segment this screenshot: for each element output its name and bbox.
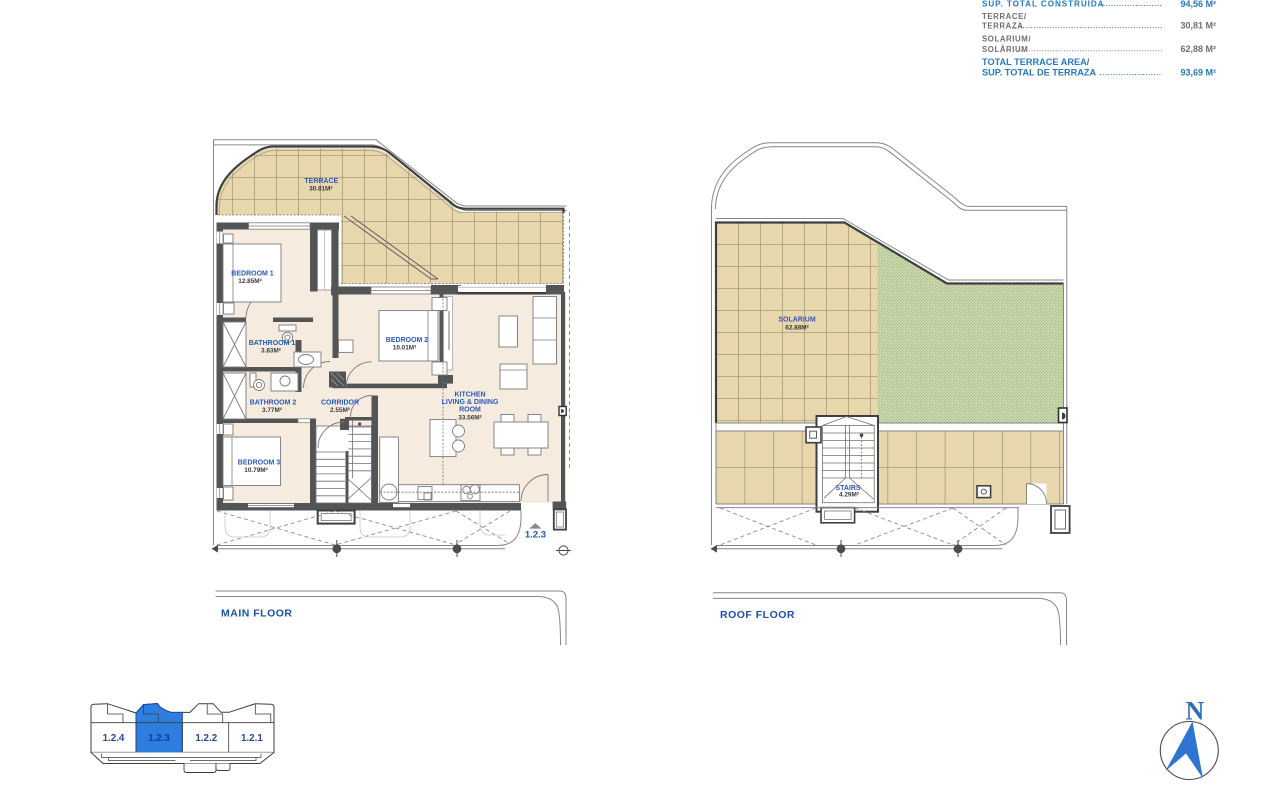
svg-text:1.2.2: 1.2.2 <box>195 733 217 744</box>
svg-text:TERRAZA: TERRAZA <box>982 22 1023 31</box>
svg-text:CORRIDOR: CORRIDOR <box>321 400 359 407</box>
svg-text:4.29M²: 4.29M² <box>839 492 859 499</box>
svg-text:ROOM: ROOM <box>459 407 481 414</box>
svg-text:BEDROOM 1: BEDROOM 1 <box>231 271 274 278</box>
svg-text:BEDROOM 3: BEDROOM 3 <box>238 460 281 467</box>
svg-text:SOLARIUM: SOLARIUM <box>778 317 816 324</box>
svg-text:SUP. TOTAL CONSTRUIDA: SUP. TOTAL CONSTRUIDA <box>982 0 1104 9</box>
svg-text:3.77M²: 3.77M² <box>262 407 282 414</box>
svg-text:93,69 M²: 93,69 M² <box>1180 68 1216 78</box>
svg-text:N: N <box>1186 697 1205 726</box>
svg-text:30.81M²: 30.81M² <box>309 186 332 193</box>
svg-text:SOLARIUM/: SOLARIUM/ <box>982 34 1031 43</box>
svg-text:10.79M²: 10.79M² <box>244 467 267 474</box>
svg-text:1.2.4: 1.2.4 <box>103 733 125 744</box>
svg-text:10.01M²: 10.01M² <box>393 344 416 351</box>
svg-text:1.2.3: 1.2.3 <box>525 530 546 541</box>
svg-text:BATHROOM 1: BATHROOM 1 <box>249 340 296 347</box>
svg-text:3.83M²: 3.83M² <box>261 348 281 355</box>
svg-text:62,88 M²: 62,88 M² <box>1180 44 1216 54</box>
svg-text:BEDROOM 2: BEDROOM 2 <box>386 337 429 344</box>
svg-text:KITCHEN: KITCHEN <box>454 392 485 399</box>
svg-text:SOLÁRIUM: SOLÁRIUM <box>982 45 1028 54</box>
svg-text:BATHROOM 2: BATHROOM 2 <box>250 400 297 407</box>
svg-text:MAIN FLOOR: MAIN FLOOR <box>221 608 293 620</box>
svg-text:2.55M²: 2.55M² <box>330 407 350 414</box>
svg-text:94,56 M²: 94,56 M² <box>1180 0 1216 9</box>
svg-text:62.88M²: 62.88M² <box>785 324 808 331</box>
svg-text:TOTAL TERRACE AREA/: TOTAL TERRACE AREA/ <box>982 57 1090 67</box>
svg-text:ROOF FLOOR: ROOF FLOOR <box>720 609 795 621</box>
svg-text:TERRACE: TERRACE <box>304 178 338 185</box>
svg-text:LIVING & DINING: LIVING & DINING <box>442 399 499 406</box>
svg-text:SUP. TOTAL DE TERRAZA: SUP. TOTAL DE TERRAZA <box>982 68 1097 78</box>
svg-text:33.56M²: 33.56M² <box>458 415 481 422</box>
svg-text:1.2.3: 1.2.3 <box>148 733 170 744</box>
svg-text:1.2.1: 1.2.1 <box>241 733 263 744</box>
svg-text:TERRACE/: TERRACE/ <box>982 12 1027 21</box>
svg-text:30,81 M²: 30,81 M² <box>1180 21 1216 31</box>
svg-text:12.85M²: 12.85M² <box>238 278 261 285</box>
